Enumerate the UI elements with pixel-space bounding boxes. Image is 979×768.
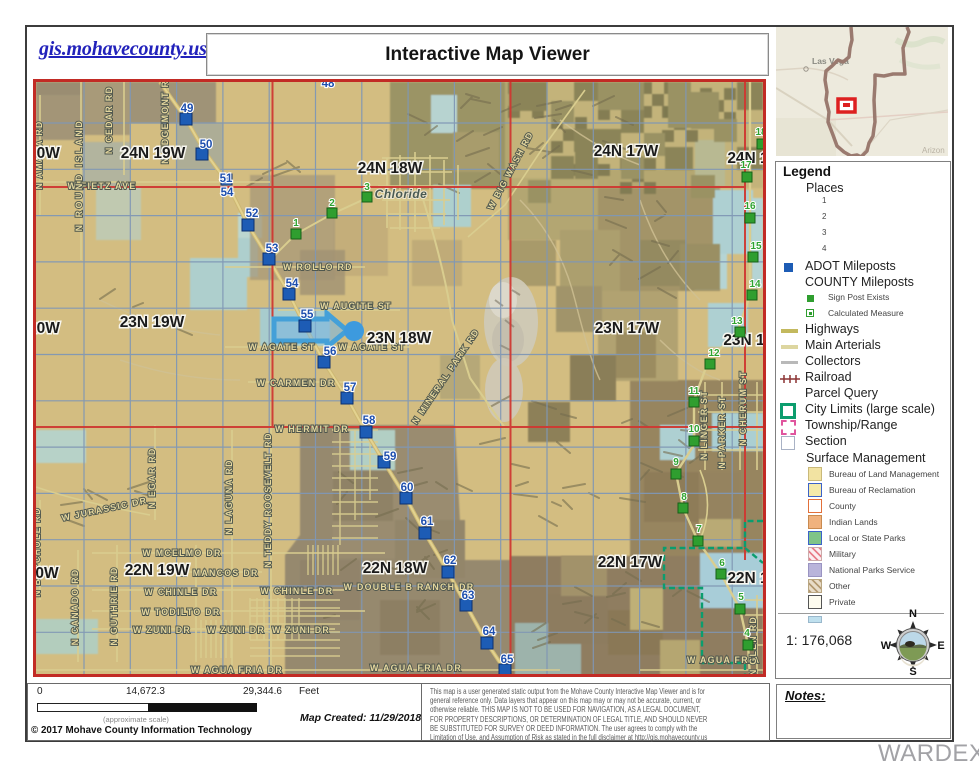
svg-text:57: 57: [344, 382, 357, 394]
svg-text:Arizon: Arizon: [922, 146, 945, 155]
svg-text:N LINGER ST: N LINGER ST: [699, 390, 709, 460]
svg-text:54: 54: [286, 278, 299, 290]
svg-text:16: 16: [744, 201, 756, 212]
svg-text:W ZUNI DR: W ZUNI DR: [272, 625, 330, 635]
svg-text:W HERMIT DR: W HERMIT DR: [275, 424, 349, 434]
svg-text:61: 61: [421, 516, 434, 528]
svg-text:Chloride: Chloride: [375, 187, 428, 201]
svg-text:7: 7: [696, 524, 702, 535]
svg-text:W ROLLO RD: W ROLLO RD: [283, 262, 353, 272]
svg-text:1: 1: [293, 218, 299, 229]
svg-text:15: 15: [750, 241, 762, 252]
svg-text:22N 19W: 22N 19W: [125, 562, 190, 579]
svg-text:22N 18W: 22N 18W: [363, 560, 428, 577]
svg-text:20W: 20W: [33, 145, 60, 162]
svg-text:24N 17W: 24N 17W: [594, 143, 659, 160]
svg-text:N TEDDY ROOSEVELT RD: N TEDDY ROOSEVELT RD: [263, 432, 273, 568]
svg-text:W MANCOS DR: W MANCOS DR: [179, 568, 258, 578]
svg-text:14: 14: [749, 279, 761, 290]
svg-text:65: 65: [501, 654, 514, 666]
svg-text:E: E: [937, 640, 944, 652]
svg-text:N ROUND ISLAND: N ROUND ISLAND: [74, 119, 84, 232]
svg-text:0W: 0W: [35, 565, 59, 582]
svg-text:52: 52: [246, 208, 259, 220]
svg-text:49: 49: [181, 103, 194, 115]
svg-text:12: 12: [708, 348, 720, 359]
svg-text:N EGAR RD: N EGAR RD: [147, 447, 157, 508]
svg-text:23N 17W: 23N 17W: [595, 320, 660, 337]
svg-text:56: 56: [324, 346, 337, 358]
svg-text:51: 51: [220, 173, 233, 185]
svg-text:W MCELMO DR: W MCELMO DR: [142, 548, 221, 558]
svg-text:W ZUNI DR: W ZUNI DR: [207, 625, 265, 635]
svg-text:23N 18W: 23N 18W: [367, 330, 432, 347]
svg-text:6: 6: [719, 558, 725, 569]
svg-text:5: 5: [738, 592, 744, 603]
svg-text:N LAGUNA RD: N LAGUNA RD: [224, 459, 234, 535]
svg-text:9: 9: [673, 457, 679, 468]
svg-text:24N 19W: 24N 19W: [121, 145, 186, 162]
svg-text:W AUGITE ST: W AUGITE ST: [320, 301, 392, 311]
svg-text:24N 18W: 24N 18W: [358, 160, 423, 177]
svg-text:63: 63: [462, 590, 475, 602]
svg-text:50: 50: [200, 139, 213, 151]
svg-text:W CHINLE DR: W CHINLE DR: [261, 586, 334, 596]
svg-text:W AGATE ST: W AGATE ST: [248, 342, 315, 352]
svg-text:22N 17W: 22N 17W: [598, 554, 663, 571]
svg-text:W AGUA FRIA DR: W AGUA FRIA DR: [370, 663, 462, 673]
svg-text:W: W: [881, 640, 892, 652]
svg-text:22N 1: 22N 1: [727, 570, 766, 587]
svg-text:23N 19W: 23N 19W: [120, 314, 185, 331]
svg-text:53: 53: [266, 243, 279, 255]
svg-text:W TODILTO DR: W TODILTO DR: [141, 607, 220, 617]
svg-text:20W: 20W: [33, 320, 60, 337]
svg-text:54: 54: [221, 187, 234, 199]
svg-text:64: 64: [483, 626, 496, 638]
svg-text:N CEDAR RD: N CEDAR RD: [104, 86, 114, 154]
svg-text:10: 10: [688, 424, 700, 435]
svg-text:60: 60: [401, 482, 414, 494]
svg-text:58: 58: [363, 415, 376, 427]
svg-text:W CHINLE DR: W CHINLE DR: [145, 587, 218, 597]
svg-text:59: 59: [384, 451, 397, 463]
svg-text:11: 11: [689, 386, 700, 397]
svg-text:N GUTHRIE RD: N GUTHRIE RD: [109, 566, 119, 645]
svg-text:N CANADO RD: N CANADO RD: [70, 569, 80, 646]
svg-text:N CHERUM ST: N CHERUM ST: [738, 370, 748, 445]
svg-text:62: 62: [444, 555, 457, 567]
svg-text:W CARMEN DR: W CARMEN DR: [257, 378, 336, 388]
svg-text:3: 3: [364, 182, 370, 193]
svg-text:2: 2: [329, 198, 335, 209]
svg-text:8: 8: [681, 492, 687, 503]
svg-text:S: S: [909, 666, 916, 676]
svg-text:W DOUBLE B RANCH DR: W DOUBLE B RANCH DR: [344, 582, 475, 592]
svg-text:N: N: [909, 608, 917, 620]
svg-text:17: 17: [740, 160, 752, 171]
svg-text:N PARKER ST: N PARKER ST: [717, 395, 727, 468]
svg-text:W ZUNI DR: W ZUNI DR: [133, 625, 191, 635]
svg-text:13: 13: [731, 316, 743, 327]
svg-text:4: 4: [744, 628, 750, 639]
svg-text:55: 55: [301, 309, 314, 321]
svg-text:W AGUA FRIA DR: W AGUA FRIA DR: [191, 665, 283, 675]
